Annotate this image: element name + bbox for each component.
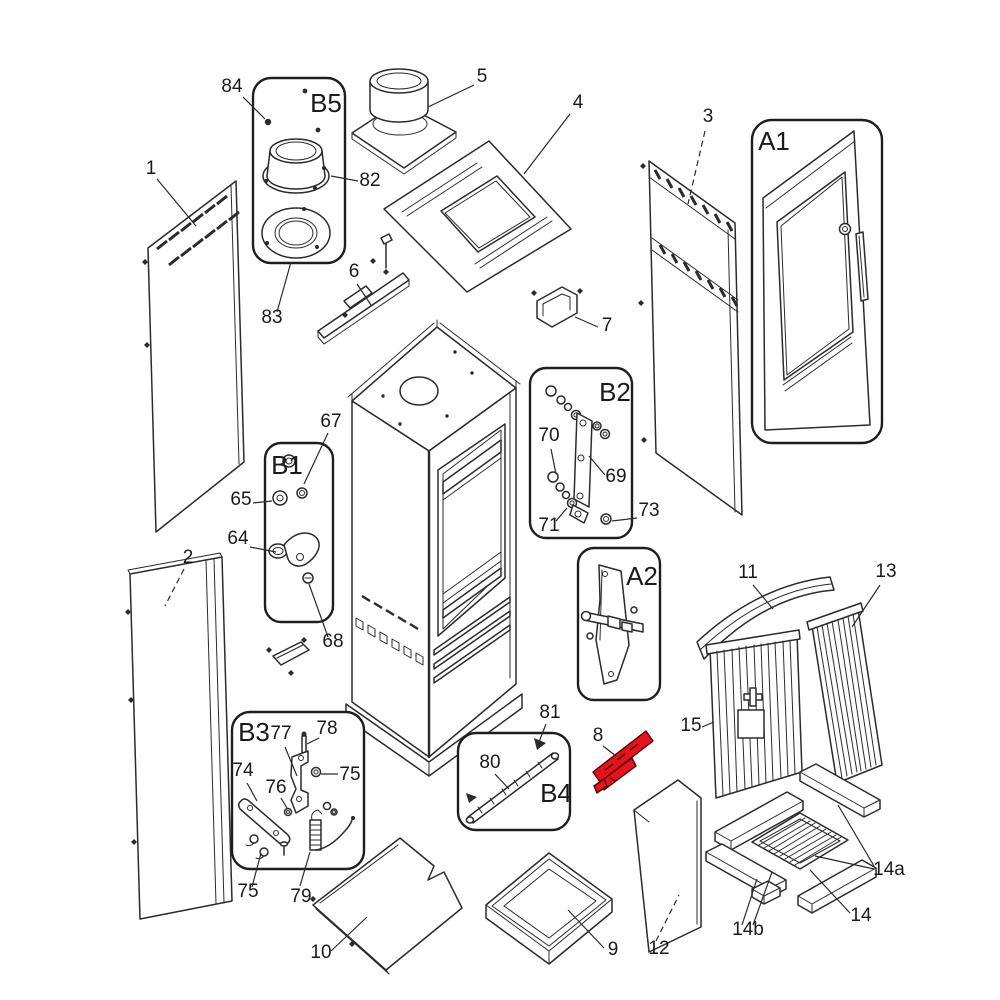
part-label-73[interactable]: 73 bbox=[638, 500, 659, 521]
body-mounting-bracket[interactable] bbox=[266, 637, 309, 676]
part-label-1[interactable]: 1 bbox=[146, 158, 157, 179]
part-label-84[interactable]: 84 bbox=[221, 76, 243, 97]
part-label-78[interactable]: 78 bbox=[316, 718, 337, 739]
leader-5 bbox=[428, 85, 474, 107]
part-68-screw[interactable] bbox=[303, 573, 313, 583]
part-label-75a[interactable]: 75 bbox=[339, 764, 360, 785]
exploded-parts-diagram: 1 2 3 4 5 6 7 8 9 10 11 12 13 14 14a 14b… bbox=[0, 0, 1000, 1000]
part-76-washer[interactable] bbox=[285, 809, 292, 816]
part-label-2[interactable]: 2 bbox=[183, 547, 194, 568]
part-label-71[interactable]: 71 bbox=[538, 515, 559, 536]
leader-15 bbox=[702, 722, 714, 727]
part-label-74[interactable]: 74 bbox=[232, 760, 254, 781]
part-label-3[interactable]: 3 bbox=[703, 106, 714, 127]
assembly-label-B4[interactable]: B4 bbox=[540, 778, 572, 808]
part-4-top-plate[interactable] bbox=[384, 141, 571, 292]
part-label-7[interactable]: 7 bbox=[602, 315, 613, 336]
part-2-left-side-panel[interactable] bbox=[125, 553, 232, 919]
part-label-68[interactable]: 68 bbox=[322, 631, 343, 652]
part-label-80[interactable]: 80 bbox=[479, 752, 500, 773]
assembly-label-B5[interactable]: B5 bbox=[310, 88, 342, 118]
part-label-15[interactable]: 15 bbox=[680, 715, 701, 736]
assembly-label-A1[interactable]: A1 bbox=[758, 126, 790, 156]
part-5-flue-spigot[interactable] bbox=[352, 69, 456, 174]
assembly-label-B1[interactable]: B1 bbox=[271, 450, 303, 480]
assembly-label-B2[interactable]: B2 bbox=[599, 377, 631, 407]
leader-3 bbox=[688, 131, 705, 204]
leader-4 bbox=[524, 114, 570, 174]
part-label-6[interactable]: 6 bbox=[349, 261, 360, 282]
part-label-14a[interactable]: 14a bbox=[873, 859, 905, 880]
leader-83 bbox=[277, 262, 291, 312]
part-label-67[interactable]: 67 bbox=[320, 411, 341, 432]
part-9-ash-pan[interactable] bbox=[486, 853, 612, 964]
part-label-13[interactable]: 13 bbox=[875, 561, 896, 582]
part-label-5[interactable]: 5 bbox=[477, 66, 488, 87]
part-label-83[interactable]: 83 bbox=[261, 307, 282, 328]
part-label-69[interactable]: 69 bbox=[605, 466, 626, 487]
part-label-81[interactable]: 81 bbox=[539, 702, 560, 723]
part-label-70[interactable]: 70 bbox=[538, 425, 559, 446]
part-label-14[interactable]: 14 bbox=[850, 905, 872, 926]
part-12-liner-panel[interactable] bbox=[634, 780, 701, 952]
part-label-10[interactable]: 10 bbox=[310, 942, 331, 963]
part-label-11[interactable]: 11 bbox=[738, 562, 758, 583]
part-label-76[interactable]: 76 bbox=[265, 777, 286, 798]
stove-body[interactable] bbox=[346, 320, 522, 776]
part-label-77[interactable]: 77 bbox=[270, 723, 291, 744]
leader-8 bbox=[603, 746, 616, 756]
part-7-bracket[interactable] bbox=[531, 287, 583, 327]
part-label-12[interactable]: 12 bbox=[648, 938, 669, 959]
part-label-9[interactable]: 9 bbox=[608, 939, 619, 960]
part-label-79[interactable]: 79 bbox=[290, 886, 311, 907]
part-label-65[interactable]: 65 bbox=[230, 489, 251, 510]
part-3-rear-panel[interactable] bbox=[638, 161, 742, 515]
part-1-left-side-panel[interactable] bbox=[142, 181, 244, 532]
part-label-4[interactable]: 4 bbox=[573, 92, 584, 113]
part-label-75b[interactable]: 75 bbox=[237, 881, 258, 902]
part-label-64[interactable]: 64 bbox=[227, 528, 249, 549]
part-label-82[interactable]: 82 bbox=[359, 170, 380, 191]
part-73-nut[interactable] bbox=[601, 514, 611, 524]
assembly-label-A2[interactable]: A2 bbox=[626, 561, 658, 591]
part-15-rear-liner[interactable] bbox=[706, 630, 802, 798]
part-label-14b[interactable]: 14b bbox=[732, 919, 764, 940]
part-82-flue-collar[interactable] bbox=[263, 139, 329, 193]
assembly-label-B3[interactable]: B3 bbox=[238, 717, 270, 747]
leader-1 bbox=[157, 179, 196, 226]
part-13-side-liner[interactable] bbox=[807, 603, 882, 783]
leader-7 bbox=[575, 317, 598, 327]
part-label-8[interactable]: 8 bbox=[593, 725, 604, 746]
part-83-blanking-ring[interactable] bbox=[262, 207, 330, 258]
